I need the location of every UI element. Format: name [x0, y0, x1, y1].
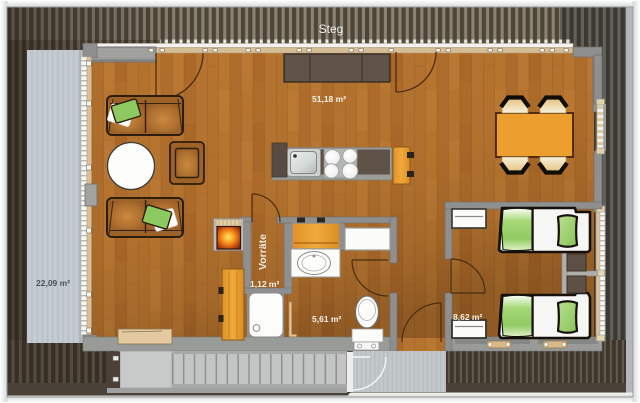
svg-text:1,12 m²: 1,12 m² — [250, 279, 279, 289]
svg-text:8,62 m²: 8,62 m² — [453, 312, 482, 322]
svg-text:Vorräte: Vorräte — [257, 234, 269, 270]
svg-text:51,18 m²: 51,18 m² — [312, 94, 346, 104]
svg-text:22,09 m²: 22,09 m² — [36, 278, 70, 288]
svg-text:Steg: Steg — [319, 22, 344, 36]
svg-text:5,61 m²: 5,61 m² — [312, 314, 341, 324]
